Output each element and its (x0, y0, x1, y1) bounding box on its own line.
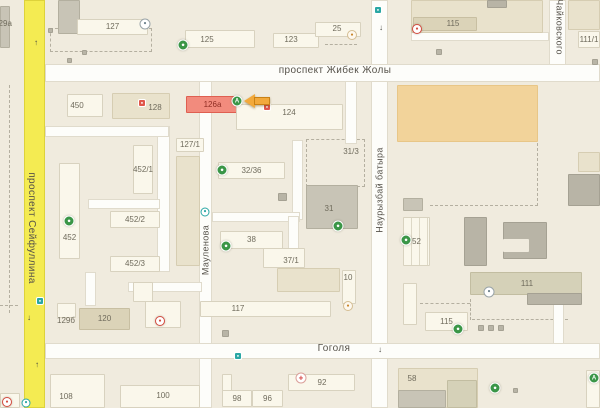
boundary-dashed-line (9, 85, 10, 313)
poi-green-icon[interactable]: ● (178, 40, 189, 51)
building-label: 96 (263, 395, 272, 403)
building-115[interactable] (413, 17, 477, 31)
oneway-arrow-icon: ↓ (378, 346, 382, 354)
building[interactable] (513, 388, 518, 393)
road-lane-6 (212, 212, 300, 222)
building[interactable] (447, 380, 477, 408)
building-label: 120 (98, 315, 111, 323)
building[interactable] (487, 0, 507, 8)
building-label: 129а (0, 20, 12, 28)
poi-green-icon[interactable]: ● (401, 235, 412, 246)
poi-icon[interactable]: ● (343, 301, 353, 311)
boundary-dashed-line (420, 303, 470, 304)
building-label: 115 (440, 318, 453, 326)
poi-green-icon[interactable]: ● (490, 383, 501, 394)
building-label: 92 (318, 379, 327, 387)
building[interactable] (176, 156, 200, 266)
building[interactable] (82, 50, 87, 55)
road-lane-5 (292, 140, 303, 220)
boundary-dashed-line (470, 299, 471, 320)
building-label: 111 (521, 280, 533, 288)
building-label: 452/3 (125, 260, 145, 268)
poi-green-icon[interactable]: ● (64, 216, 75, 227)
oneway-arrow-icon: ↓ (379, 24, 383, 32)
highlight-arrow-shaft (254, 97, 270, 105)
building[interactable] (398, 390, 446, 408)
building-label: 58 (408, 375, 417, 383)
cafe-icon[interactable]: ● (347, 30, 357, 40)
road-lane-2 (45, 126, 169, 137)
building-label: 98 (233, 395, 242, 403)
street-label-maulenova: Мауленова (202, 225, 211, 275)
building[interactable] (67, 58, 72, 63)
poi-red-icon[interactable]: ● (155, 316, 165, 326)
boundary-dashed-line (325, 44, 357, 45)
building-label: 100 (156, 392, 169, 400)
road-lane-3 (88, 199, 160, 209)
building-label: 123 (284, 36, 297, 44)
building[interactable] (578, 152, 600, 172)
building-label: 127 (106, 23, 119, 31)
pharmacy-icon[interactable]: А (232, 96, 243, 107)
transit-stop-icon[interactable]: ● (374, 6, 382, 14)
building-452[interactable] (59, 163, 80, 259)
building-label: 126а (204, 101, 222, 109)
building[interactable] (527, 293, 582, 305)
road-lane-4 (345, 80, 357, 144)
building-label: 32/36 (241, 167, 261, 175)
building-label: 37/1 (283, 257, 299, 265)
building-label: 115 (447, 20, 460, 28)
building-label: 10 (344, 274, 353, 282)
building-label: 25 (333, 25, 342, 33)
building[interactable] (222, 330, 229, 337)
building[interactable] (488, 325, 494, 331)
poi-green-icon[interactable]: ● (333, 221, 344, 232)
building-label: 31/3 (343, 148, 359, 156)
medical-cross-icon[interactable]: + (296, 373, 307, 384)
building-label: 52 (412, 238, 421, 246)
building[interactable] (278, 193, 287, 201)
building[interactable] (397, 85, 538, 142)
building-label: 124 (282, 109, 295, 117)
building-label: 127/1 (180, 141, 200, 149)
building[interactable] (222, 374, 232, 391)
poi-icon[interactable]: ● (140, 19, 151, 30)
building-label: 452/2 (125, 216, 145, 224)
building-label: 125 (200, 36, 213, 44)
poi-icon[interactable]: ● (484, 287, 495, 298)
building[interactable] (478, 325, 484, 331)
street-label-chaykovskogo: Чайковского (555, 0, 564, 55)
map-canvas[interactable]: 127129а12512325115111/1450128126а124452/… (0, 0, 600, 408)
poi-green-icon[interactable]: ● (453, 324, 464, 335)
poi-red-icon[interactable]: ● (412, 24, 422, 34)
boundary-dashed-line (0, 305, 18, 306)
road-lane-10 (411, 32, 549, 41)
oneway-arrow-icon: ↑ (34, 39, 38, 47)
building-label: 452 (63, 234, 76, 242)
building-label: 38 (247, 236, 256, 244)
transit-stop-icon[interactable]: ● (234, 352, 242, 360)
building-label: 108 (59, 393, 72, 401)
oneway-arrow-icon: ↑ (35, 361, 39, 369)
poi-red-icon[interactable]: ● (2, 397, 12, 407)
building[interactable] (436, 49, 442, 55)
street-label-gogolya: Гоголя (318, 344, 351, 354)
oneway-arrow-icon: ↓ (27, 314, 31, 322)
transit-stop-icon[interactable]: ● (22, 399, 31, 408)
building[interactable] (498, 325, 504, 331)
boundary-dashed-line (430, 205, 538, 206)
building[interactable] (503, 239, 529, 252)
transit-stop-icon[interactable]: ● (201, 208, 210, 217)
road-lane-9 (85, 272, 96, 306)
street-label-nauryzbai-batyra: Наурызбай батыра (376, 147, 385, 233)
building[interactable] (568, 174, 600, 206)
street-label-zhibek-zholy: проспект Жибек Жолы (279, 66, 392, 76)
building[interactable] (403, 198, 423, 211)
building[interactable] (464, 217, 487, 266)
building-117[interactable] (200, 301, 331, 317)
building[interactable] (403, 283, 417, 325)
street-label-seyfullina: проспект Сейфуллина (26, 172, 36, 284)
building-label: 117 (232, 305, 245, 313)
building[interactable] (48, 28, 53, 33)
poi-green-icon[interactable]: ● (221, 241, 232, 252)
building-label: 31 (325, 205, 334, 213)
building-label: 128 (148, 104, 161, 112)
building[interactable] (277, 268, 340, 292)
building-108[interactable] (50, 374, 105, 408)
building-label: 111/1 (580, 36, 599, 44)
boundary-dashed-line (537, 143, 538, 206)
poi-red-icon[interactable]: ● (138, 99, 146, 107)
highlight-arrow-icon (244, 94, 271, 109)
building-label: 450 (70, 102, 83, 110)
building-label: 129б (57, 317, 75, 325)
building[interactable] (568, 0, 600, 30)
building-125[interactable] (185, 30, 255, 48)
building[interactable] (133, 282, 153, 302)
building-label: 452/1 (133, 166, 153, 174)
poi-green-icon[interactable]: ● (217, 165, 228, 176)
transit-stop-icon[interactable]: ● (36, 297, 44, 305)
building[interactable] (592, 59, 598, 65)
pharmacy-icon[interactable]: А (589, 373, 600, 384)
